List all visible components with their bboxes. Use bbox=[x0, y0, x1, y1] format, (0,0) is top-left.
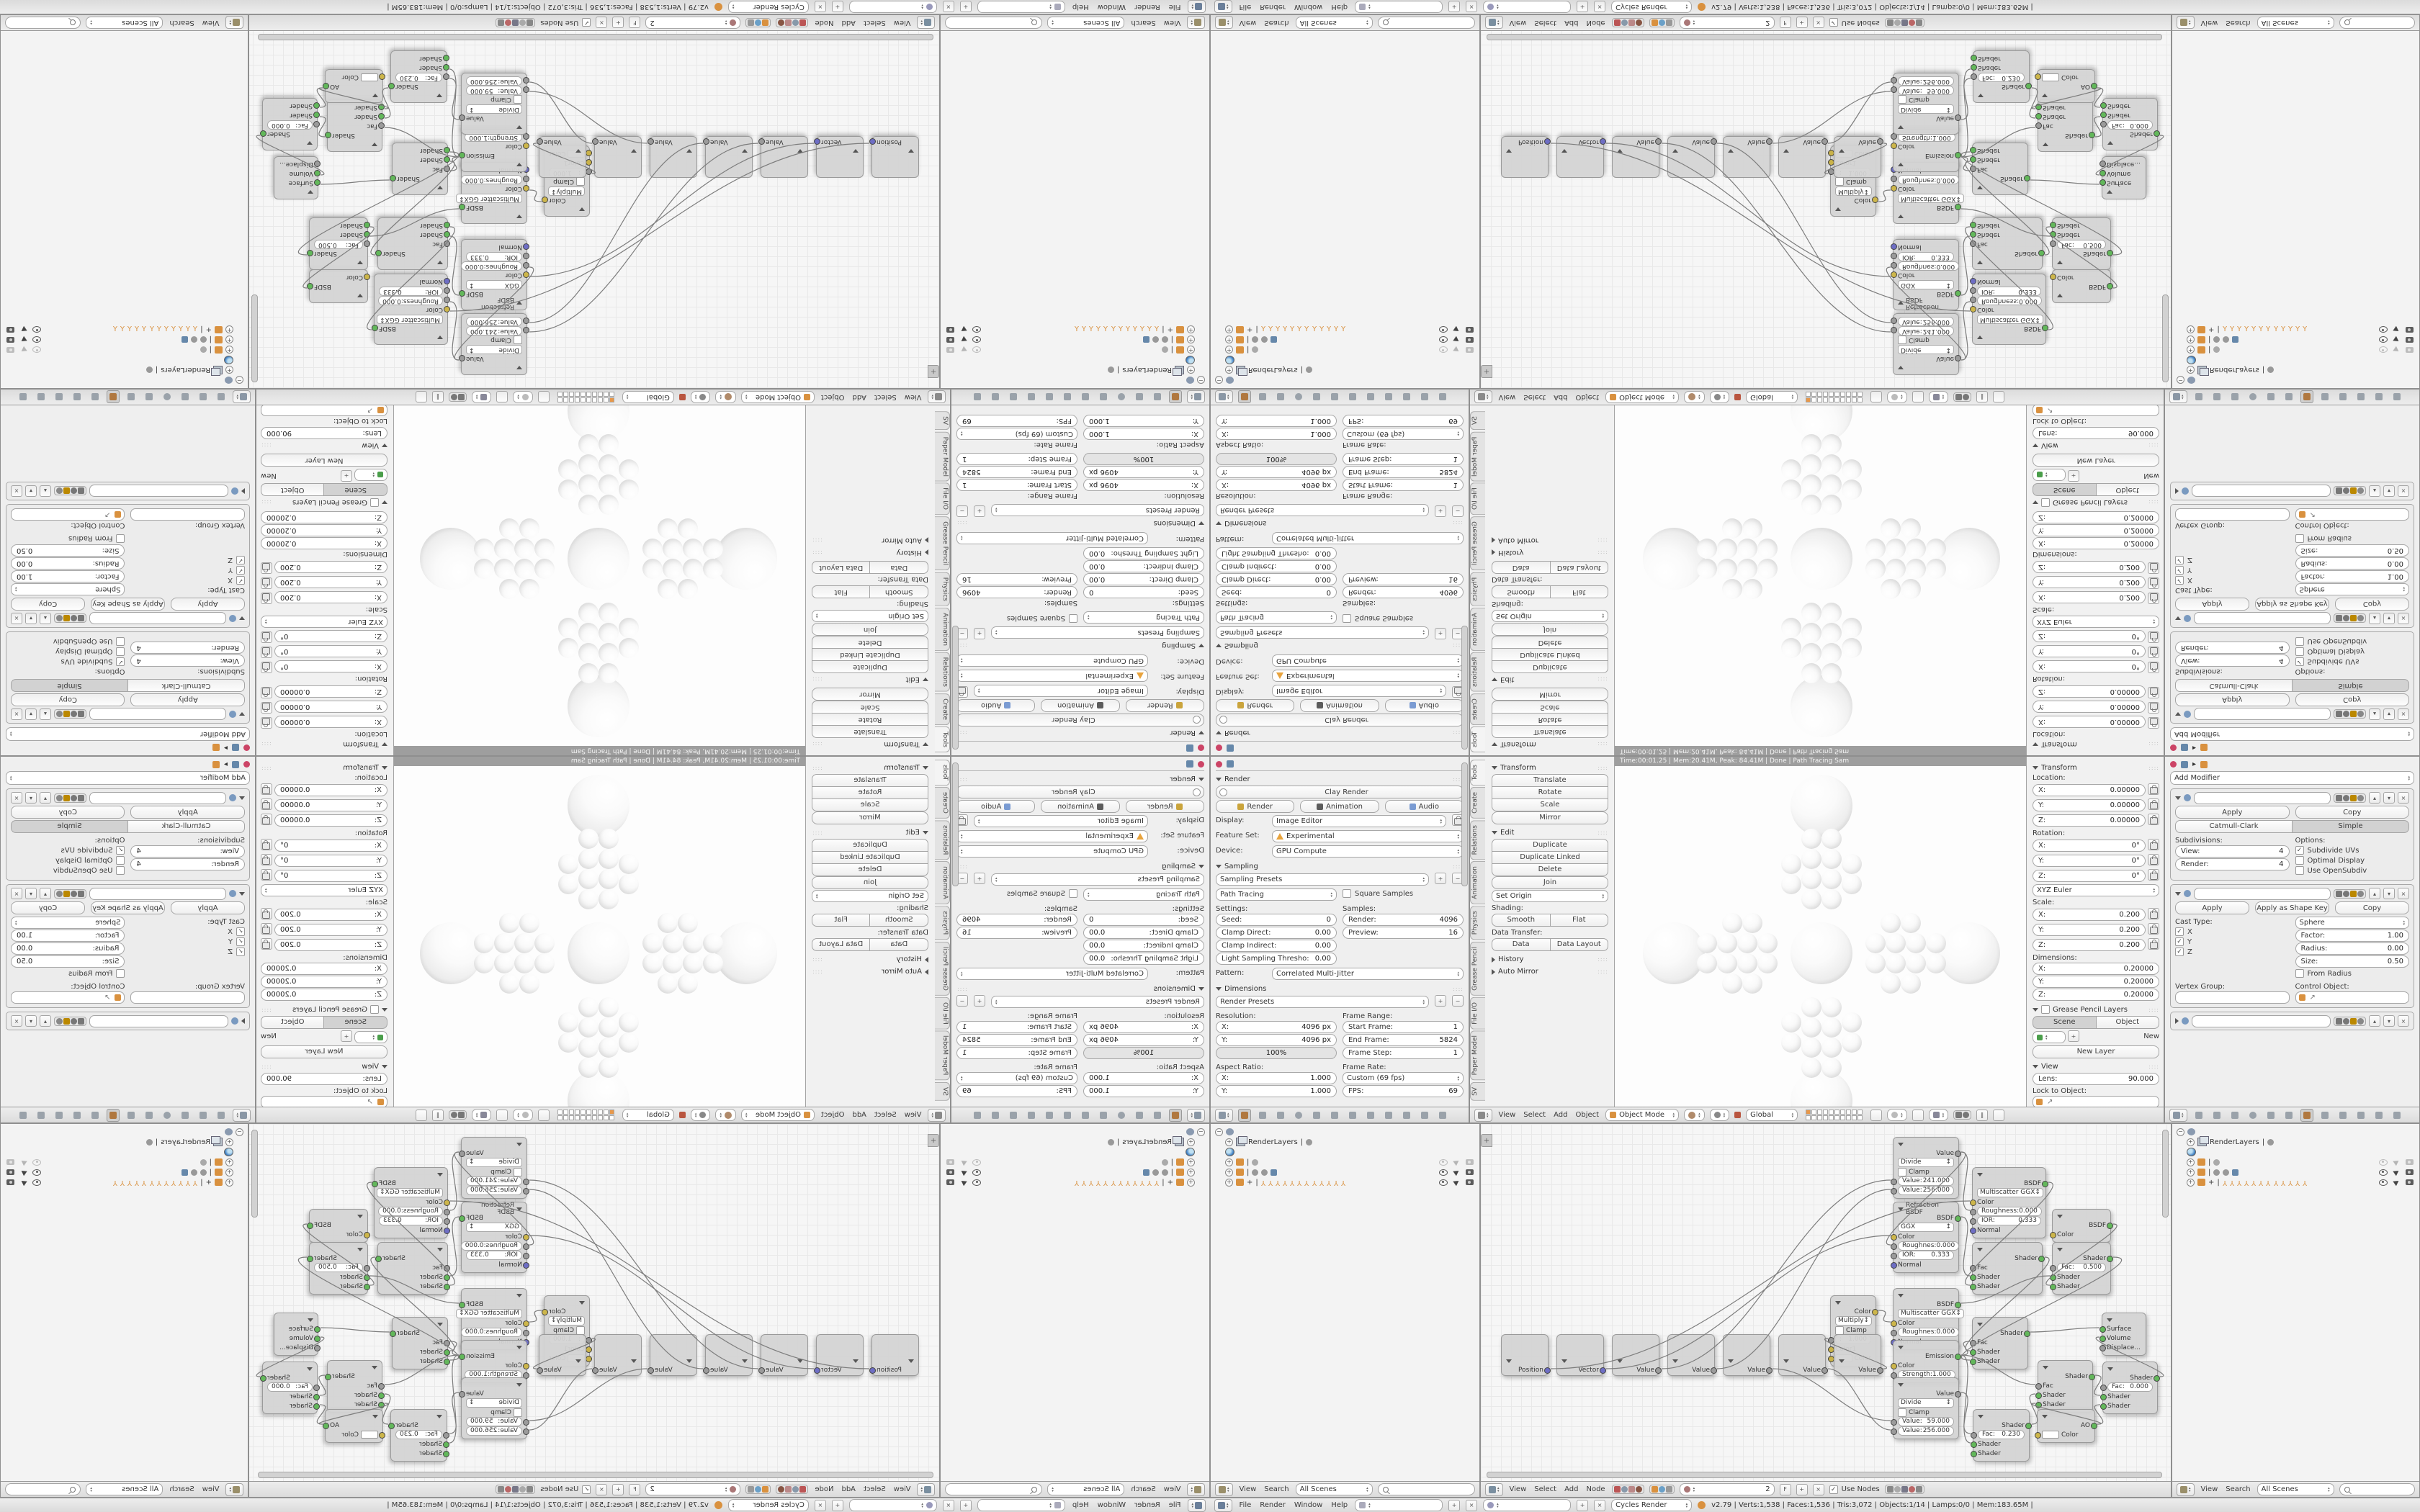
cast-modifier-button-copy[interactable]: Copy bbox=[2335, 598, 2409, 611]
output-socket[interactable] bbox=[390, 175, 396, 181]
render-props-l13-value-slider-1[interactable]: X:4096 px bbox=[1216, 479, 1337, 491]
panel-expand-icon[interactable] bbox=[239, 713, 245, 716]
layer-toggle[interactable] bbox=[575, 1115, 580, 1120]
output-socket[interactable] bbox=[459, 355, 465, 361]
output-socket[interactable] bbox=[459, 1302, 465, 1308]
render-props-tab-modifiers[interactable] bbox=[1061, 1109, 1074, 1122]
panel-expand-icon[interactable] bbox=[2175, 713, 2181, 716]
add-preset-button[interactable]: + bbox=[974, 873, 985, 884]
node-value-slider[interactable]: Roughness:0.000 bbox=[378, 1207, 443, 1216]
selectability-toggle-icon[interactable] bbox=[2393, 326, 2400, 334]
outliner-row-3[interactable]: +| bbox=[942, 1157, 1206, 1167]
cast-modifier-r1-value-slider-1[interactable]: Factor:1.00 bbox=[11, 570, 125, 582]
input-socket[interactable] bbox=[523, 143, 529, 149]
outliner-scene-filter[interactable]: All Scenes▴▾ bbox=[2257, 1483, 2334, 1495]
render-props-preset-dropdown-12[interactable]: Render Presets▴▾ bbox=[991, 996, 1204, 1008]
remove-preset-button[interactable]: − bbox=[1452, 505, 1464, 517]
info-menu-window[interactable]: Window bbox=[1096, 3, 1127, 11]
n-panel-value-slider-16[interactable]: Y:0.20000 bbox=[2033, 524, 2159, 536]
render-props-tab-render[interactable] bbox=[1238, 391, 1251, 404]
input-socket[interactable] bbox=[2099, 1345, 2106, 1351]
cast-modifier-name-field[interactable] bbox=[2194, 888, 2331, 900]
n-panel-panel-header-18[interactable]: Grease Pencil Layers:::: bbox=[2033, 1005, 2159, 1014]
checkbox[interactable] bbox=[2295, 856, 2304, 865]
input-socket[interactable] bbox=[313, 112, 320, 118]
cast-modifier-r1-checkbox-row-4[interactable]: From Radius bbox=[2295, 969, 2410, 978]
render-props-tab-data[interactable] bbox=[1043, 391, 1056, 404]
input-socket[interactable] bbox=[444, 1349, 450, 1356]
renderability-toggle-icon[interactable] bbox=[1466, 1169, 1474, 1175]
output-socket[interactable] bbox=[388, 1423, 395, 1429]
expand-icon[interactable]: + bbox=[225, 336, 233, 344]
collapse-icon[interactable]: − bbox=[2177, 377, 2184, 384]
checkbox[interactable]: ✓ bbox=[236, 927, 245, 936]
node-collapse-icon[interactable] bbox=[631, 1359, 637, 1363]
n-panel-option-scene[interactable]: Scene bbox=[324, 483, 388, 496]
outliner-row-1[interactable]: +RenderLayers| bbox=[942, 1137, 1206, 1147]
render-props-scrollbar[interactable] bbox=[952, 626, 959, 750]
lock-button[interactable] bbox=[261, 562, 272, 574]
node-math2[interactable]: ValueDivide↕ClampValue:59.000Value:256.0… bbox=[461, 1377, 527, 1439]
layer-toggle[interactable] bbox=[1806, 1115, 1811, 1120]
tool-shelf-button-duplicate[interactable]: Duplicate bbox=[812, 839, 928, 852]
panel-expand-icon[interactable] bbox=[382, 742, 387, 746]
node-collapse-icon[interactable] bbox=[436, 1415, 442, 1418]
node-in_pos[interactable]: Position bbox=[1501, 136, 1549, 178]
node-dropdown[interactable]: Multiscatter GGX↕ bbox=[456, 1309, 522, 1318]
cast-modifier-header[interactable]: ▴▾× bbox=[11, 612, 245, 625]
render-props-r9-value-slider-1[interactable]: Render:4096 bbox=[956, 586, 1077, 598]
input-socket[interactable] bbox=[586, 1337, 592, 1344]
subsurf-modifier-option-simple[interactable]: Simple bbox=[11, 820, 127, 833]
node-menu-select[interactable]: Select bbox=[862, 19, 887, 27]
render-props-tab-constraints[interactable] bbox=[1328, 391, 1341, 404]
output-socket[interactable] bbox=[1955, 1151, 1961, 1157]
render-props-tab-object[interactable] bbox=[1097, 1109, 1110, 1122]
node-menu-add[interactable]: Add bbox=[1563, 19, 1579, 27]
cast-modifier-r1-value-slider-1[interactable]: Factor:1.00 bbox=[2295, 570, 2410, 582]
panel-expand-icon[interactable] bbox=[382, 766, 387, 770]
delete-scene-button[interactable]: × bbox=[1594, 1500, 1605, 1511]
input-socket[interactable] bbox=[2099, 1326, 2106, 1333]
subsurf-modifier-l2-value-slider-1[interactable]: View:4 bbox=[2175, 654, 2290, 667]
modifier-props-tab-world[interactable] bbox=[161, 1109, 174, 1122]
info-menu-window[interactable]: Window bbox=[1293, 3, 1324, 11]
output-socket[interactable] bbox=[703, 1367, 709, 1374]
modifier-props-tab-constraints[interactable] bbox=[125, 391, 138, 404]
renderability-toggle-icon[interactable] bbox=[1466, 327, 1474, 333]
viewport-menu-object[interactable]: Object bbox=[1574, 1111, 1600, 1119]
node-emis[interactable]: EmissionColorStrength:1.000 bbox=[1893, 129, 1959, 172]
node-in_vec[interactable]: Vector bbox=[1556, 136, 1604, 178]
render-props-l9-value-slider-1[interactable]: Seed:0 bbox=[1216, 586, 1337, 598]
tool-shelf-option-flat[interactable]: Flat bbox=[1551, 585, 1609, 598]
input-socket[interactable] bbox=[378, 1383, 385, 1390]
render-props-tab-world[interactable] bbox=[1115, 391, 1128, 404]
render-props-l14-value-slider-2[interactable]: Y:1.000 bbox=[1216, 415, 1337, 427]
outliner-menu-search[interactable]: Search bbox=[1263, 1485, 1290, 1493]
outliner-row-2[interactable] bbox=[2175, 355, 2418, 365]
snap-magnet-button[interactable] bbox=[496, 1110, 508, 1121]
tool-shelf-option-smooth[interactable]: Smooth bbox=[1492, 914, 1551, 927]
node-in_v5[interactable]: Value bbox=[1834, 136, 1881, 178]
screen-layout-selector[interactable]: ▴▾ bbox=[977, 1, 1065, 13]
cast-modifier-r1-value-slider-1[interactable]: Factor:1.00 bbox=[11, 930, 125, 942]
input-socket[interactable] bbox=[443, 1441, 449, 1448]
modifier-props-tab-modifiers[interactable] bbox=[2300, 1109, 2313, 1122]
render-props-l13-value-slider-2[interactable]: Y:4096 px bbox=[1083, 1034, 1204, 1046]
cast-modifier-name-field[interactable] bbox=[2194, 613, 2331, 625]
node-collapse-icon[interactable] bbox=[1783, 150, 1789, 153]
render-props-l14-value-slider-2[interactable]: Y:1.000 bbox=[1083, 1085, 1204, 1097]
output-socket[interactable] bbox=[1711, 138, 1717, 145]
render-props-r9-value-slider-1[interactable]: Render:4096 bbox=[1343, 586, 1464, 598]
n-panel-value-slider-2[interactable]: X:0.00000 bbox=[274, 784, 387, 796]
tool-shelf-button-delete[interactable]: Delete bbox=[812, 636, 928, 648]
renderability-toggle-icon[interactable] bbox=[2406, 347, 2414, 353]
render-props-r9-value-slider-1[interactable]: Render:4096 bbox=[1343, 914, 1464, 926]
node-menu-select[interactable]: Select bbox=[1533, 19, 1558, 27]
output-socket[interactable] bbox=[459, 204, 465, 210]
restriction-toggles[interactable] bbox=[6, 327, 41, 333]
output-socket[interactable] bbox=[260, 130, 266, 137]
tool-shelf-button-duplicate-linked[interactable]: Duplicate Linked bbox=[1492, 852, 1608, 864]
node-editor-canvas[interactable]: +ValueDivide↕ClampValue:241.000Value:256… bbox=[249, 31, 939, 388]
node-collapse-icon[interactable] bbox=[516, 1294, 522, 1297]
cast-modifier-r2-object-field-1[interactable]: ↗ bbox=[11, 508, 125, 521]
checkbox[interactable] bbox=[117, 866, 125, 875]
input-socket[interactable] bbox=[523, 77, 529, 84]
node-mixB[interactable]: ShaderFac:0.500ShaderShader bbox=[309, 217, 368, 270]
unlink-datablock-button[interactable]: × bbox=[1813, 17, 1824, 29]
input-socket[interactable] bbox=[314, 170, 321, 176]
node-collapse-icon[interactable] bbox=[575, 1359, 581, 1363]
n-panel-value-slider-8[interactable]: Z:0° bbox=[2033, 870, 2146, 882]
checkbox[interactable] bbox=[2295, 647, 2304, 656]
node-value-slider[interactable]: Value:256.000 bbox=[1898, 1186, 1954, 1195]
renderability-toggle-icon[interactable] bbox=[1466, 1179, 1474, 1185]
outliner-search-input[interactable] bbox=[1378, 17, 1475, 29]
outliner-search-input[interactable] bbox=[945, 17, 1042, 29]
checkbox[interactable] bbox=[117, 637, 125, 646]
node-value-slider[interactable]: Fac:0.500 bbox=[2057, 240, 2106, 249]
input-socket[interactable] bbox=[378, 122, 385, 129]
input-socket[interactable] bbox=[1971, 1451, 1977, 1457]
cast-modifier-l1-checkbox-row-1[interactable]: ✓X bbox=[131, 927, 246, 936]
tool-shelf-button-delete[interactable]: Delete bbox=[1492, 864, 1608, 876]
lock-button[interactable] bbox=[2148, 717, 2159, 729]
viewport-menu-add[interactable]: Add bbox=[851, 393, 868, 401]
node-collapse-icon[interactable] bbox=[1977, 1248, 1983, 1251]
outliner-row-1[interactable]: +RenderLayers| bbox=[2175, 365, 2418, 375]
modifier-props-tab-texture[interactable] bbox=[53, 1109, 66, 1122]
checkbox[interactable] bbox=[1835, 1326, 1844, 1335]
output-socket[interactable] bbox=[2038, 250, 2045, 256]
node-editor-region-toggle[interactable]: + bbox=[1481, 365, 1492, 378]
add-preset-button[interactable]: + bbox=[1435, 995, 1446, 1007]
tool-shelf-tab-tools[interactable]: Tools bbox=[935, 726, 950, 752]
pause-button[interactable]: ‖ bbox=[432, 392, 444, 403]
checkbox[interactable] bbox=[576, 1326, 585, 1335]
node-collapse-icon[interactable] bbox=[1839, 150, 1845, 153]
input-socket[interactable] bbox=[444, 1284, 450, 1290]
render-props-r13-value-slider-1[interactable]: Start Frame:1 bbox=[956, 479, 1077, 491]
input-socket[interactable] bbox=[523, 1428, 529, 1435]
outliner-row-0[interactable]: − bbox=[1214, 1127, 1478, 1137]
modifier-props-tab-particles[interactable] bbox=[2372, 1109, 2385, 1122]
node-value-slider[interactable]: Roughnes:0.000 bbox=[1898, 175, 1959, 184]
snap-element-selector[interactable]: ▴▾ bbox=[1929, 1109, 1949, 1121]
input-socket[interactable] bbox=[443, 1432, 449, 1439]
render-engine-selector[interactable]: Cycles Render▴▾ bbox=[728, 1499, 809, 1511]
output-socket[interactable] bbox=[1955, 1215, 1961, 1222]
node-value-slider[interactable]: Value:59.000 bbox=[466, 1417, 522, 1426]
input-socket[interactable] bbox=[1971, 73, 1977, 80]
n-panel-value-slider-6[interactable]: X:0° bbox=[2033, 840, 2146, 852]
modifier-3-move-down-button[interactable]: ▾ bbox=[25, 485, 37, 497]
cast-modifier-r1-dropdown-0[interactable]: Sphere▴▾ bbox=[11, 583, 125, 595]
panel-expand-icon[interactable] bbox=[1492, 831, 1497, 834]
node-in_v2[interactable]: Value bbox=[705, 136, 753, 178]
input-socket[interactable] bbox=[444, 166, 450, 172]
cast-modifier-r1-value-slider-2[interactable]: Radius:0.00 bbox=[11, 557, 125, 570]
layer-toggle[interactable] bbox=[1857, 1115, 1863, 1120]
viewport-menu-view[interactable]: View bbox=[903, 1111, 923, 1119]
output-socket[interactable] bbox=[1877, 1367, 1883, 1374]
tool-shelf-tab-paper-model[interactable]: Paper Model bbox=[1470, 431, 1485, 481]
node-mixF[interactable]: ShaderFac:0.230ShaderShader bbox=[1973, 50, 2030, 103]
input-socket[interactable] bbox=[1970, 1274, 1976, 1281]
outliner-scene-filter[interactable]: All Scenes▴▾ bbox=[1296, 1483, 1373, 1495]
info-editor-type-button[interactable]: ▴▾ bbox=[1214, 1499, 1232, 1512]
restriction-toggles[interactable] bbox=[946, 337, 981, 343]
color-swatch[interactable] bbox=[361, 1431, 378, 1439]
lock-button[interactable] bbox=[261, 577, 272, 589]
delete-layout-button[interactable]: × bbox=[943, 1, 954, 13]
input-socket[interactable] bbox=[523, 1330, 529, 1336]
output-socket[interactable] bbox=[2089, 132, 2095, 138]
selectability-toggle-icon[interactable] bbox=[19, 1169, 27, 1176]
output-socket[interactable] bbox=[1600, 138, 1606, 145]
cast-modifier-move-down-button[interactable]: ▾ bbox=[25, 613, 37, 624]
tool-shelf-panel-header-0[interactable]: Transform:::: bbox=[1492, 764, 1608, 772]
node-in_v1[interactable]: Value bbox=[761, 1334, 808, 1376]
render-props-panel-header-0[interactable]: Render:::: bbox=[1216, 729, 1464, 737]
tool-shelf-panel-header-0[interactable]: Transform:::: bbox=[1492, 740, 1608, 748]
node-out_mat[interactable]: SurfaceVolumeDisplace... bbox=[274, 1313, 318, 1356]
checkbox[interactable] bbox=[2295, 866, 2304, 875]
input-socket[interactable] bbox=[1970, 1284, 1976, 1290]
modifier-props-tab-data[interactable] bbox=[2318, 391, 2331, 404]
output-socket[interactable] bbox=[537, 138, 543, 145]
subsurf-modifier-button-apply[interactable]: Apply bbox=[131, 806, 246, 819]
render-props-tab-modifiers[interactable] bbox=[1061, 391, 1074, 404]
output-socket[interactable] bbox=[869, 138, 876, 145]
checkbox[interactable] bbox=[2041, 498, 2050, 507]
cast-modifier-r1-value-slider-2[interactable]: Radius:0.00 bbox=[2295, 942, 2410, 955]
panel-expand-icon[interactable] bbox=[1492, 742, 1497, 746]
modifier-props-tab-object[interactable] bbox=[143, 391, 156, 404]
pivot-selector[interactable]: ▴▾ bbox=[691, 391, 711, 403]
node-editor-region-toggle[interactable]: + bbox=[928, 365, 939, 378]
input-socket[interactable] bbox=[378, 104, 385, 110]
render-props-r14-dropdown-1[interactable]: Custom (69 fps)▴▾ bbox=[956, 1072, 1077, 1084]
panel-collapsed-icon[interactable] bbox=[925, 969, 928, 975]
checkbox[interactable]: ✓ bbox=[2175, 556, 2184, 564]
layer-toggle[interactable] bbox=[581, 392, 586, 397]
info-editor-type-button[interactable]: ▴▾ bbox=[1214, 1, 1232, 14]
input-socket[interactable] bbox=[523, 243, 529, 250]
scene-selector[interactable]: ▴▾ bbox=[1483, 1499, 1571, 1511]
info-menu-file[interactable]: File bbox=[1168, 3, 1183, 11]
subsurf-modifier-move-down-button[interactable]: ▾ bbox=[2383, 792, 2395, 804]
input-socket[interactable] bbox=[1970, 1209, 1976, 1215]
subsurf-modifier-r2-checkbox-row-1[interactable]: ✓Subdivide UVs bbox=[11, 657, 125, 666]
node-collapse-icon[interactable] bbox=[575, 150, 581, 153]
modifier-props-tab-modifiers[interactable] bbox=[2300, 391, 2313, 404]
outliner-search-input[interactable] bbox=[5, 17, 81, 29]
lock-button[interactable] bbox=[261, 702, 272, 714]
node-mixB[interactable]: ShaderFac:0.500ShaderShader bbox=[2052, 1242, 2111, 1295]
layer-toggle[interactable] bbox=[1823, 392, 1828, 397]
node-collapse-icon[interactable] bbox=[2107, 142, 2113, 145]
node-collapse-icon[interactable] bbox=[516, 1383, 522, 1387]
tool-shelf-tab-file-i-o[interactable]: File I/O bbox=[1470, 997, 1485, 1030]
node-collapse-icon[interactable] bbox=[516, 1346, 522, 1349]
n-panel-value-slider-16[interactable]: Y:0.20000 bbox=[2033, 976, 2159, 988]
node-menu-select[interactable]: Select bbox=[1533, 1485, 1558, 1493]
modifier-3-header[interactable]: ▴▾× bbox=[2175, 1014, 2409, 1027]
modifier-props-tab-modifiers[interactable] bbox=[107, 1109, 120, 1122]
node-editor-hscrollbar[interactable] bbox=[258, 34, 933, 40]
node-dropdown[interactable]: Multiply↕ bbox=[548, 1316, 585, 1326]
input-socket[interactable] bbox=[1970, 1228, 1976, 1234]
render-props-r14-value-slider-2[interactable]: FPS:69 bbox=[956, 415, 1077, 427]
restriction-toggles[interactable] bbox=[2379, 337, 2414, 343]
subsurf-modifier-option-catmull-clark[interactable]: Catmull-Clark bbox=[127, 820, 245, 833]
input-socket[interactable] bbox=[443, 64, 449, 71]
node-menu-select[interactable]: Select bbox=[862, 1485, 887, 1493]
checkbox[interactable] bbox=[1898, 1168, 1906, 1176]
input-socket[interactable] bbox=[379, 73, 385, 80]
viewport-menu-view[interactable]: View bbox=[903, 393, 923, 401]
visibility-toggle-icon[interactable] bbox=[1439, 337, 1448, 343]
modifier-props-tab-world[interactable] bbox=[2246, 391, 2259, 404]
render-engine-selector[interactable]: Cycles Render▴▾ bbox=[1611, 1499, 1692, 1511]
add-layout-button[interactable]: + bbox=[1448, 1500, 1460, 1511]
subsurf-modifier-button-copy[interactable]: Copy bbox=[2295, 693, 2410, 706]
node-mixD[interactable]: ShaderFacShaderShader bbox=[327, 1360, 382, 1413]
add-preset-button[interactable]: + bbox=[1435, 505, 1446, 517]
tool-shelf-button-delete[interactable]: Delete bbox=[812, 864, 928, 876]
layer-toggle[interactable] bbox=[1846, 1115, 1851, 1120]
modifier-3-move-down-button[interactable]: ▾ bbox=[2383, 485, 2395, 497]
render-props-dropdown-5[interactable]: GPU Compute▴▾ bbox=[1272, 845, 1464, 858]
cast-modifier-r1-value-slider-3[interactable]: Size:0.50 bbox=[2295, 544, 2410, 557]
subsurf-modifier-move-down-button[interactable]: ▾ bbox=[25, 708, 37, 720]
render-props-l14-value-slider-2[interactable]: Y:1.000 bbox=[1216, 1085, 1337, 1097]
panel-expand-icon[interactable] bbox=[2033, 1065, 2038, 1068]
visibility-toggle-icon[interactable] bbox=[1439, 1179, 1448, 1186]
n-panel-value-slider-11[interactable]: X:0.200 bbox=[274, 909, 387, 921]
render-props-tab-object[interactable] bbox=[1310, 1109, 1323, 1122]
render-props-r13-value-slider-2[interactable]: End Frame:5824 bbox=[1343, 466, 1464, 478]
tool-shelf-option-smooth[interactable]: Smooth bbox=[1492, 585, 1551, 598]
input-socket[interactable] bbox=[1891, 176, 1897, 182]
subsurf-modifier-button-copy[interactable]: Copy bbox=[2295, 806, 2410, 819]
render-props-r13-value-slider-3[interactable]: Frame Step:1 bbox=[1343, 1047, 1464, 1059]
viewport-canvas[interactable]: Time:00:01.25 | Mem:20.41M, Peak: 84.41M… bbox=[394, 757, 806, 1108]
outliner-menu-search[interactable]: Search bbox=[1263, 19, 1290, 27]
lock-button[interactable] bbox=[261, 814, 272, 825]
gp-pencil-dropdown[interactable]: ▴▾ bbox=[354, 1031, 387, 1043]
input-socket[interactable] bbox=[523, 176, 529, 182]
restriction-toggles[interactable] bbox=[2379, 1179, 2414, 1186]
node-value-slider[interactable]: Value:256.000 bbox=[466, 317, 522, 326]
outliner-row-3[interactable]: +| bbox=[1214, 1157, 1478, 1167]
node-dropdown[interactable]: Multiscatter GGX↕ bbox=[1977, 1188, 2043, 1197]
output-socket[interactable] bbox=[307, 1256, 313, 1262]
render-props-panel-header-11[interactable]: Dimensions:::: bbox=[956, 519, 1204, 527]
tool-shelf-button-2[interactable]: Mirror bbox=[812, 688, 928, 701]
outliner-search-input[interactable] bbox=[1378, 1483, 1475, 1495]
input-socket[interactable] bbox=[523, 1419, 529, 1426]
checkbox[interactable]: ✓ bbox=[2175, 937, 2184, 946]
n-panel-value-slider-4[interactable]: Z:0.00000 bbox=[274, 814, 387, 827]
unlink-datablock-button[interactable]: × bbox=[596, 17, 607, 29]
tool-shelf-tab-paper-model[interactable]: Paper Model bbox=[935, 1030, 950, 1080]
render-props-button-audio[interactable]: Audio bbox=[1385, 699, 1464, 712]
renderability-toggle-icon[interactable] bbox=[1466, 347, 1474, 353]
layer-toggle[interactable] bbox=[592, 1115, 597, 1120]
lock-button[interactable] bbox=[261, 647, 272, 658]
input-socket[interactable] bbox=[1970, 1340, 1976, 1346]
input-socket[interactable] bbox=[586, 1346, 592, 1353]
tool-shelf-dropdown-6[interactable]: Set Origin▴▾ bbox=[812, 890, 928, 902]
lock-button[interactable] bbox=[2148, 908, 2159, 919]
n-panel-value-slider-15[interactable]: X:0.20000 bbox=[2033, 537, 2159, 549]
node-collapse-icon[interactable] bbox=[1977, 1173, 1983, 1176]
cast-modifier-r1-value-slider-3[interactable]: Size:0.50 bbox=[11, 955, 125, 968]
node-in_v1[interactable]: Value bbox=[1612, 1334, 1659, 1376]
node-collapse-icon[interactable] bbox=[797, 1359, 803, 1363]
input-socket[interactable] bbox=[1891, 185, 1897, 192]
modifier-props-tab-physics[interactable] bbox=[2390, 391, 2403, 404]
modifier-props-tab-render-layers[interactable] bbox=[2210, 1109, 2223, 1122]
cast-modifier-r1-dropdown-0[interactable]: Sphere▴▾ bbox=[11, 917, 125, 929]
panel-expand-icon[interactable] bbox=[382, 444, 387, 447]
outliner-menu-view[interactable]: View bbox=[1162, 1485, 1183, 1493]
outliner-editor-type-button[interactable]: ▴▾ bbox=[2177, 1483, 2195, 1496]
tool-shelf-option-smooth[interactable]: Smooth bbox=[870, 914, 929, 927]
tool-shelf-option-flat[interactable]: Flat bbox=[1551, 914, 1609, 927]
visibility-toggle-icon[interactable] bbox=[972, 337, 981, 343]
input-socket[interactable] bbox=[313, 102, 320, 109]
output-socket[interactable] bbox=[372, 325, 378, 331]
node-menu-add[interactable]: Add bbox=[841, 19, 857, 27]
input-socket[interactable] bbox=[2100, 1403, 2107, 1410]
input-socket[interactable] bbox=[2050, 1232, 2056, 1238]
lock-button[interactable] bbox=[2148, 798, 2159, 810]
layer-toggle[interactable] bbox=[604, 392, 609, 397]
input-socket[interactable] bbox=[1970, 166, 1976, 172]
panel-expand-icon[interactable] bbox=[923, 678, 928, 681]
render-props-l13-value-slider-1[interactable]: X:4096 px bbox=[1216, 1021, 1337, 1033]
tool-shelf-button-2[interactable]: Mirror bbox=[1492, 811, 1608, 824]
subsurf-modifier-l2-value-slider-1[interactable]: View:4 bbox=[131, 654, 246, 667]
layer-toggle[interactable] bbox=[1806, 1110, 1811, 1115]
info-menu-help[interactable]: Help bbox=[1330, 1501, 1349, 1509]
